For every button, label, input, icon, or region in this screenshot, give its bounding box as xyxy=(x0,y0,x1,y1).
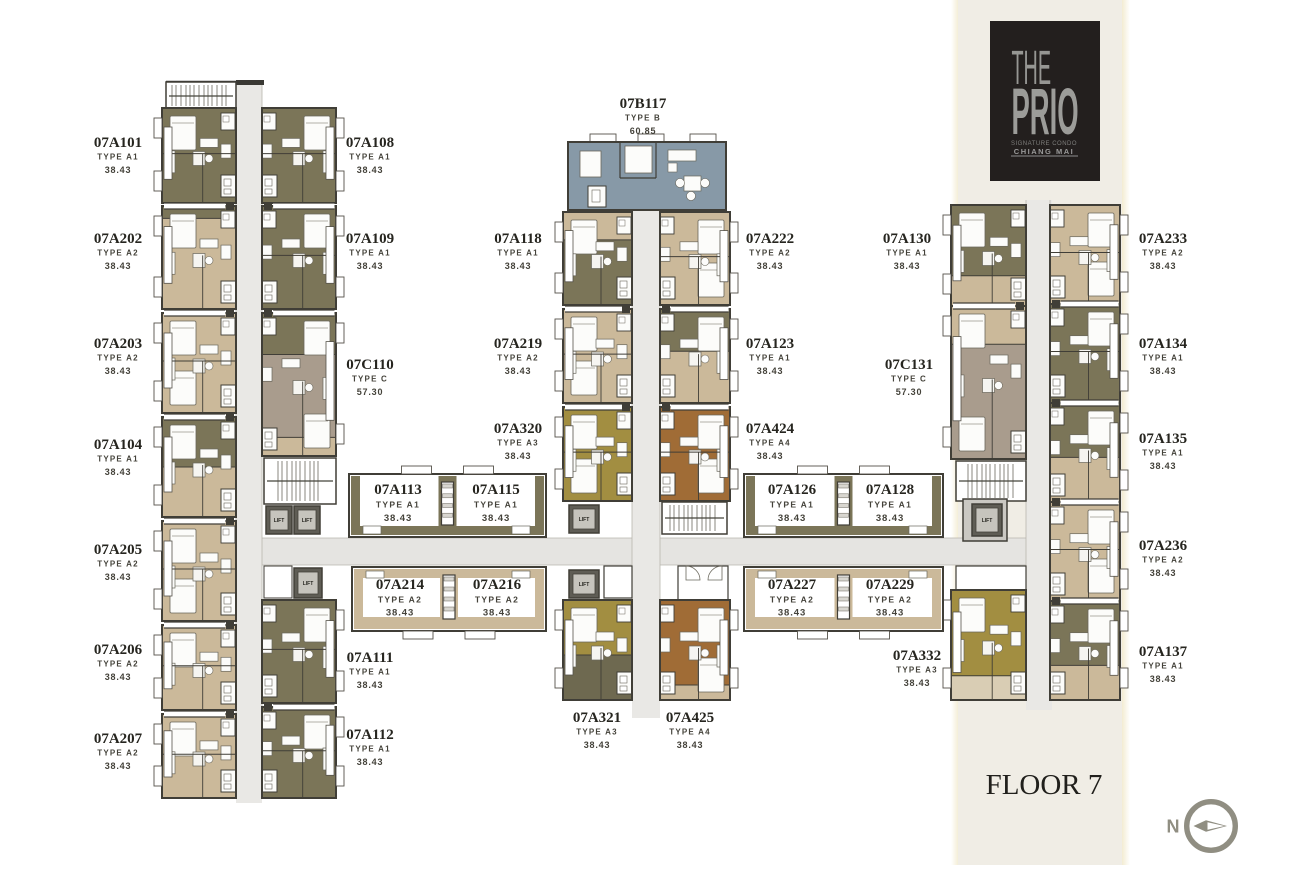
svg-text:38.43: 38.43 xyxy=(483,608,511,619)
svg-text:38.43: 38.43 xyxy=(105,572,132,582)
svg-text:TYPE A1: TYPE A1 xyxy=(97,455,138,464)
svg-text:38.43: 38.43 xyxy=(894,261,921,271)
svg-text:07A424: 07A424 xyxy=(746,421,795,437)
svg-text:07A118: 07A118 xyxy=(494,231,542,247)
svg-text:TYPE A2: TYPE A2 xyxy=(868,595,912,605)
svg-text:TYPE A1: TYPE A1 xyxy=(349,153,390,162)
svg-text:38.43: 38.43 xyxy=(105,761,132,771)
svg-text:TYPE A3: TYPE A3 xyxy=(896,666,937,675)
svg-text:LIFT: LIFT xyxy=(302,518,313,524)
svg-text:TYPE A4: TYPE A4 xyxy=(669,728,710,737)
svg-text:LIFT: LIFT xyxy=(579,517,590,523)
svg-text:TYPE A1: TYPE A1 xyxy=(1142,662,1183,671)
svg-text:LIFT: LIFT xyxy=(274,518,285,524)
svg-text:38.43: 38.43 xyxy=(105,261,132,271)
svg-text:07A101: 07A101 xyxy=(94,135,142,151)
svg-text:38.43: 38.43 xyxy=(386,608,414,619)
svg-text:57.30: 57.30 xyxy=(357,387,384,397)
svg-text:TYPE A2: TYPE A2 xyxy=(97,560,138,569)
svg-text:07A137: 07A137 xyxy=(1139,644,1188,660)
svg-text:38.43: 38.43 xyxy=(1150,568,1177,578)
svg-text:07A214: 07A214 xyxy=(376,577,425,593)
svg-text:38.43: 38.43 xyxy=(105,672,132,682)
svg-text:07A216: 07A216 xyxy=(473,577,522,593)
svg-text:07A203: 07A203 xyxy=(94,336,142,352)
svg-text:07A206: 07A206 xyxy=(94,642,143,658)
svg-text:TYPE A4: TYPE A4 xyxy=(749,439,790,448)
svg-text:07A108: 07A108 xyxy=(346,135,394,151)
svg-text:60.85: 60.85 xyxy=(630,126,657,136)
svg-text:TYPE A2: TYPE A2 xyxy=(97,249,138,258)
svg-text:07C131: 07C131 xyxy=(885,357,933,373)
svg-text:TYPE A1: TYPE A1 xyxy=(868,500,912,510)
svg-text:TYPE A3: TYPE A3 xyxy=(497,439,538,448)
svg-text:FLOOR 7: FLOOR 7 xyxy=(986,769,1103,801)
svg-text:TYPE A2: TYPE A2 xyxy=(97,749,138,758)
svg-text:LIFT: LIFT xyxy=(303,581,314,587)
svg-text:38.43: 38.43 xyxy=(105,165,132,175)
svg-text:38.43: 38.43 xyxy=(1150,261,1177,271)
svg-text:57.30: 57.30 xyxy=(896,387,923,397)
svg-text:TYPE A3: TYPE A3 xyxy=(576,728,617,737)
svg-text:38.43: 38.43 xyxy=(482,513,510,524)
svg-text:TYPE A2: TYPE A2 xyxy=(97,354,138,363)
svg-text:07A109: 07A109 xyxy=(346,231,394,247)
svg-text:TYPE A1: TYPE A1 xyxy=(474,500,518,510)
svg-text:38.43: 38.43 xyxy=(757,261,784,271)
svg-text:TYPE A2: TYPE A2 xyxy=(378,595,422,605)
svg-text:TYPE A1: TYPE A1 xyxy=(1142,449,1183,458)
svg-text:07A112: 07A112 xyxy=(346,727,394,743)
svg-text:TYPE A2: TYPE A2 xyxy=(475,595,519,605)
svg-text:TYPE C: TYPE C xyxy=(891,375,927,384)
svg-text:TYPE B: TYPE B xyxy=(625,114,661,123)
svg-text:07A134: 07A134 xyxy=(1139,336,1188,352)
svg-text:38.43: 38.43 xyxy=(677,740,704,750)
svg-text:07A236: 07A236 xyxy=(1139,538,1188,554)
svg-text:38.43: 38.43 xyxy=(778,608,806,619)
svg-text:38.43: 38.43 xyxy=(904,678,931,688)
svg-text:CHIANG MAI: CHIANG MAI xyxy=(1014,147,1074,156)
svg-text:07A219: 07A219 xyxy=(494,336,542,352)
svg-text:07A126: 07A126 xyxy=(768,482,817,498)
svg-text:38.43: 38.43 xyxy=(357,165,384,175)
svg-text:07A233: 07A233 xyxy=(1139,231,1187,247)
svg-text:07A227: 07A227 xyxy=(768,577,817,593)
svg-text:07A135: 07A135 xyxy=(1139,431,1187,447)
svg-text:07A115: 07A115 xyxy=(472,482,520,498)
svg-text:TYPE A1: TYPE A1 xyxy=(349,745,390,754)
svg-text:TYPE A2: TYPE A2 xyxy=(97,660,138,669)
svg-text:07A202: 07A202 xyxy=(94,231,142,247)
svg-text:38.43: 38.43 xyxy=(757,451,784,461)
svg-text:38.43: 38.43 xyxy=(384,513,412,524)
svg-text:38.43: 38.43 xyxy=(778,513,806,524)
svg-text:TYPE A1: TYPE A1 xyxy=(886,249,927,258)
svg-text:38.43: 38.43 xyxy=(584,740,611,750)
svg-text:07A111: 07A111 xyxy=(347,650,394,666)
svg-text:38.43: 38.43 xyxy=(105,467,132,477)
svg-text:38.43: 38.43 xyxy=(505,366,532,376)
svg-text:38.43: 38.43 xyxy=(1150,461,1177,471)
svg-text:07A113: 07A113 xyxy=(374,482,422,498)
svg-text:N: N xyxy=(1167,817,1180,837)
svg-text:LIFT: LIFT xyxy=(579,582,590,588)
svg-text:38.43: 38.43 xyxy=(876,608,904,619)
svg-text:07A425: 07A425 xyxy=(666,710,714,726)
svg-text:07A104: 07A104 xyxy=(94,437,143,453)
svg-text:TYPE A2: TYPE A2 xyxy=(1142,556,1183,565)
svg-text:TYPE A2: TYPE A2 xyxy=(770,595,814,605)
svg-text:38.43: 38.43 xyxy=(757,366,784,376)
svg-text:TYPE A2: TYPE A2 xyxy=(1142,249,1183,258)
svg-text:38.43: 38.43 xyxy=(105,366,132,376)
svg-text:TYPE A1: TYPE A1 xyxy=(349,668,390,677)
svg-text:TYPE A1: TYPE A1 xyxy=(97,153,138,162)
svg-text:PRIO: PRIO xyxy=(1011,76,1078,149)
svg-text:07A321: 07A321 xyxy=(573,710,621,726)
svg-text:07A222: 07A222 xyxy=(746,231,794,247)
svg-text:TYPE A1: TYPE A1 xyxy=(376,500,420,510)
svg-text:07B117: 07B117 xyxy=(620,96,667,112)
svg-text:38.43: 38.43 xyxy=(357,757,384,767)
svg-text:TYPE A2: TYPE A2 xyxy=(749,249,790,258)
svg-text:TYPE C: TYPE C xyxy=(352,375,388,384)
svg-text:07C110: 07C110 xyxy=(346,357,394,373)
svg-text:07A130: 07A130 xyxy=(883,231,931,247)
svg-text:07A123: 07A123 xyxy=(746,336,794,352)
svg-text:38.43: 38.43 xyxy=(1150,366,1177,376)
svg-text:07A128: 07A128 xyxy=(866,482,914,498)
svg-text:07A207: 07A207 xyxy=(94,731,143,747)
svg-text:07A205: 07A205 xyxy=(94,542,142,558)
svg-text:07A320: 07A320 xyxy=(494,421,542,437)
svg-text:TYPE A2: TYPE A2 xyxy=(497,354,538,363)
svg-text:TYPE A1: TYPE A1 xyxy=(770,500,814,510)
svg-text:38.43: 38.43 xyxy=(505,451,532,461)
svg-text:38.43: 38.43 xyxy=(505,261,532,271)
svg-text:TYPE A1: TYPE A1 xyxy=(497,249,538,258)
svg-text:38.43: 38.43 xyxy=(357,680,384,690)
svg-text:07A332: 07A332 xyxy=(893,648,941,664)
svg-text:LIFT: LIFT xyxy=(982,518,993,524)
svg-text:TYPE A1: TYPE A1 xyxy=(349,249,390,258)
svg-text:07A229: 07A229 xyxy=(866,577,914,593)
svg-text:38.43: 38.43 xyxy=(357,261,384,271)
svg-text:TYPE A1: TYPE A1 xyxy=(1142,354,1183,363)
svg-text:38.43: 38.43 xyxy=(876,513,904,524)
svg-text:38.43: 38.43 xyxy=(1150,674,1177,684)
svg-text:TYPE A1: TYPE A1 xyxy=(749,354,790,363)
